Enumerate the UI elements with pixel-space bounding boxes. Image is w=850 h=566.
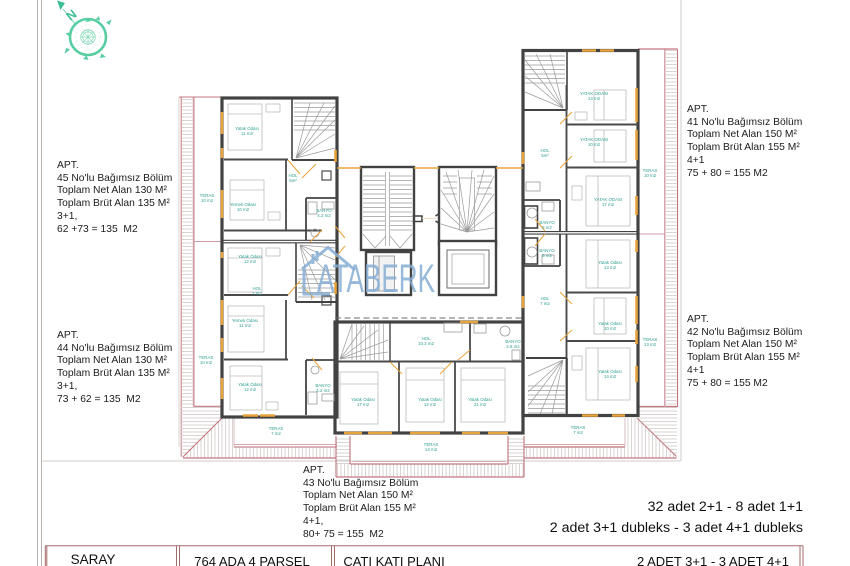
svg-text:Yatak Odası11 m2: Yatak Odası11 m2 xyxy=(235,126,259,136)
svg-text:Yatak Odası12 m2: Yatak Odası12 m2 xyxy=(238,382,262,392)
svg-text:TERAS13 m2: TERAS13 m2 xyxy=(643,337,658,347)
svg-text:HOL5m²: HOL5m² xyxy=(540,148,550,158)
svg-text:TERAS7 m2: TERAS7 m2 xyxy=(571,425,586,435)
svg-text:TERAS7 m2: TERAS7 m2 xyxy=(269,426,284,436)
svg-text:TERAS14 m2: TERAS14 m2 xyxy=(424,442,439,452)
svg-text:Yatak Odası13 m2: Yatak Odası13 m2 xyxy=(598,260,622,270)
svg-text:TERAS10 m2: TERAS10 m2 xyxy=(643,168,658,178)
svg-text:HOL7 m2: HOL7 m2 xyxy=(540,296,550,306)
svg-text:TERAS10 m2: TERAS10 m2 xyxy=(199,355,214,365)
svg-text:HOL5m²: HOL5m² xyxy=(288,173,298,183)
svg-text:HOL7 m2: HOL7 m2 xyxy=(252,286,262,296)
svg-text:Yemek Odası11 m2: Yemek Odası11 m2 xyxy=(232,318,258,328)
svg-text:Yatak Odası12 m2: Yatak Odası12 m2 xyxy=(238,254,262,264)
svg-text:TERAS10 m2: TERAS10 m2 xyxy=(200,193,215,203)
svg-text:Yatak Odası14 m2: Yatak Odası14 m2 xyxy=(598,369,622,379)
svg-text:BANYO4.8 m2: BANYO4.8 m2 xyxy=(505,339,521,349)
svg-text:BANYO5 m2: BANYO5 m2 xyxy=(539,248,555,258)
svg-text:HOL10.3 m2: HOL10.3 m2 xyxy=(418,336,434,346)
svg-text:Yatak Odası21 m2: Yatak Odası21 m2 xyxy=(468,397,492,407)
svg-text:Yatak Odası17 m2: Yatak Odası17 m2 xyxy=(351,397,375,407)
svg-text:BANYO5 m2: BANYO5 m2 xyxy=(539,220,555,230)
svg-text:BANYO4.2 m2: BANYO4.2 m2 xyxy=(315,383,331,393)
svg-text:Yatak Odası10 m2: Yatak Odası10 m2 xyxy=(598,321,622,331)
svg-text:BANYO4.2 m2: BANYO4.2 m2 xyxy=(316,208,332,218)
svg-text:ATABERK: ATABERK xyxy=(317,257,435,301)
svg-text:Yatak Odası12 m2: Yatak Odası12 m2 xyxy=(418,397,442,407)
svg-text:Yemek Odası10 m2: Yemek Odası10 m2 xyxy=(230,202,256,212)
